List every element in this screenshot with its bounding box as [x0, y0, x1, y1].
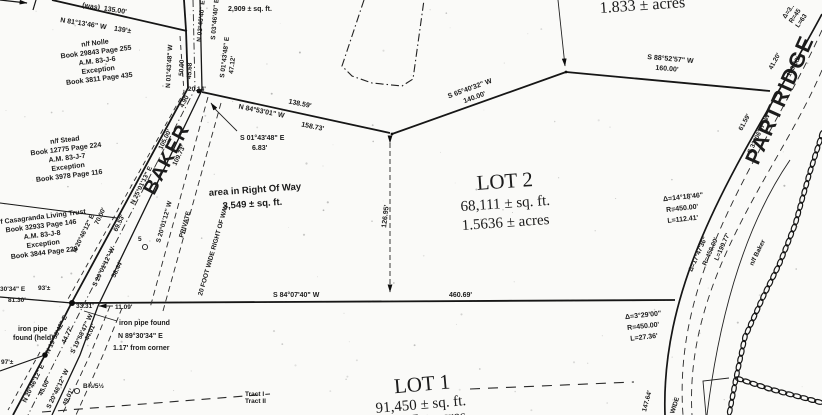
svg-text:B½/5½: B½/5½	[83, 382, 105, 390]
svg-text:area in Right Of Way: area in Right Of Way	[208, 181, 302, 198]
svg-text:1.833 ± acres: 1.833 ± acres	[599, 0, 686, 17]
svg-text:Tract I: Tract I	[245, 391, 264, 398]
svg-text:1.5636 ± acres: 1.5636 ± acres	[461, 212, 550, 234]
svg-text:Δ=14°18'46": Δ=14°18'46"	[663, 191, 704, 203]
svg-text:S 88°52'57" W: S 88°52'57" W	[647, 53, 694, 65]
svg-text:LOT 2: LOT 2	[476, 167, 534, 195]
svg-text:found (held): found (held)	[13, 335, 53, 342]
svg-text:S 20°01'12" W: S 20°01'12" W	[154, 199, 174, 243]
svg-text:S 01°43'48" E: S 01°43'48" E	[240, 134, 285, 142]
svg-text:WIDE: WIDE	[669, 396, 681, 415]
svg-text:Δ=3°29'00": Δ=3°29'00"	[625, 309, 662, 321]
svg-text:(was) 135.00': (was) 135.00'	[82, 2, 128, 16]
svg-text:81.30': 81.30'	[8, 297, 26, 304]
svg-text:L=112.41': L=112.41'	[667, 215, 699, 225]
svg-text:N 01°43'48" W: N 01°43'48" W	[164, 44, 174, 89]
svg-text:47.12': 47.12'	[228, 55, 237, 74]
svg-text:N 89°30'34" E: N 89°30'34" E	[118, 332, 163, 340]
svg-text:58.44': 58.44'	[111, 259, 125, 278]
svg-text:S 84°07'40" W: S 84°07'40" W	[273, 291, 320, 299]
svg-text:33.31': 33.31'	[76, 303, 94, 310]
svg-text:460.69': 460.69'	[449, 292, 472, 299]
svg-text:PRIVATE: PRIVATE	[178, 210, 192, 239]
svg-text:n/f Baker: n/f Baker	[749, 238, 768, 266]
svg-text:93'±: 93'±	[38, 285, 51, 292]
svg-text:30'34" E: 30'34" E	[0, 286, 26, 293]
svg-text:L=27.36': L=27.36'	[630, 333, 658, 343]
svg-text:iron pipe: iron pipe	[18, 326, 48, 333]
svg-text:61.59': 61.59'	[738, 113, 753, 132]
svg-text:138.59': 138.59'	[288, 99, 312, 111]
svg-text:126.95': 126.95'	[381, 204, 391, 228]
svg-text:5: 5	[138, 236, 142, 243]
svg-text:97'±: 97'±	[1, 359, 14, 366]
svg-text:160.00': 160.00'	[655, 65, 679, 74]
svg-text:Tract II: Tract II	[245, 398, 266, 405]
svg-text:147.64': 147.64'	[641, 390, 653, 413]
svg-text:45.00': 45.00'	[38, 377, 52, 396]
svg-text:6.83': 6.83'	[252, 145, 268, 152]
svg-text:11.09': 11.09'	[115, 304, 133, 311]
svg-text:Book 3844 Page 229: Book 3844 Page 229	[11, 246, 79, 261]
svg-text:45.68: 45.68	[186, 62, 194, 79]
svg-text:3,549 ± sq. ft.: 3,549 ± sq. ft.	[222, 197, 282, 212]
svg-text:50.00: 50.00	[178, 59, 186, 76]
svg-text:iron pipe found: iron pipe found	[119, 320, 170, 327]
svg-text:68,111 ± sq. ft.: 68,111 ± sq. ft.	[460, 193, 551, 215]
svg-text:2,909 ± sq. ft.: 2,909 ± sq. ft.	[228, 6, 272, 13]
svg-text:N 81°13'46" W 139'±: N 81°13'46" W 139'±	[60, 16, 132, 35]
svg-text:158.73': 158.73'	[301, 122, 325, 134]
svg-text:LOT 1: LOT 1	[393, 369, 451, 398]
svg-text:S 03°46'40" E: S 03°46'40" E	[209, 0, 221, 40]
svg-text:R=450.00': R=450.00'	[627, 322, 660, 332]
svg-text:N 03°46'40" E: N 03°46'40" E	[195, 0, 207, 42]
svg-text:20 FOOT WIDE RIGHT OF WAY: 20 FOOT WIDE RIGHT OF WAY	[197, 203, 230, 297]
svg-text:4.90: 4.90	[179, 94, 191, 109]
svg-text:20.14': 20.14'	[188, 86, 206, 93]
svg-text:Book 3978 Page 116: Book 3978 Page 116	[36, 169, 103, 184]
svg-text:R=450.00': R=450.00'	[666, 204, 699, 214]
svg-text:1.17' from corner: 1.17' from corner	[113, 345, 170, 352]
svg-text:Book 3811 Page 435: Book 3811 Page 435	[66, 72, 133, 87]
